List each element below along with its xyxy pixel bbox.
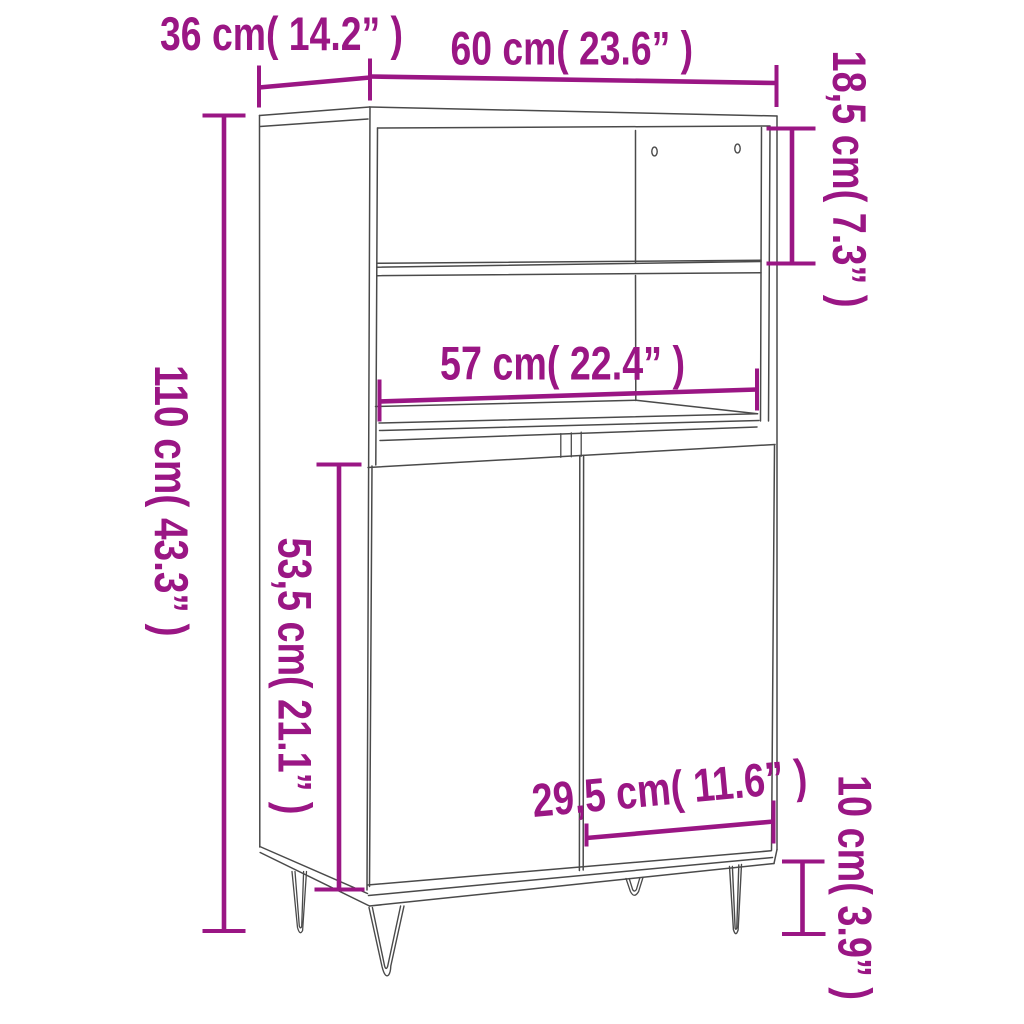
svg-text:36 cm( 14.2” ): 36 cm( 14.2” ) [160,7,403,60]
svg-text:29,5 cm( 11.6” ): 29,5 cm( 11.6” ) [530,749,810,827]
svg-text:110 cm( 43.3” ): 110 cm( 43.3” ) [145,365,198,637]
svg-text:53,5 cm( 21.1” ): 53,5 cm( 21.1” ) [269,538,322,815]
svg-text:60 cm( 23.6” ): 60 cm( 23.6” ) [451,22,694,75]
svg-text:18,5 cm( 7.3” ): 18,5 cm( 7.3” ) [823,51,876,308]
svg-text:57 cm( 22.4” ): 57 cm( 22.4” ) [440,337,685,390]
svg-text:10 cm( 3.9” ): 10 cm( 3.9” ) [829,775,882,1000]
